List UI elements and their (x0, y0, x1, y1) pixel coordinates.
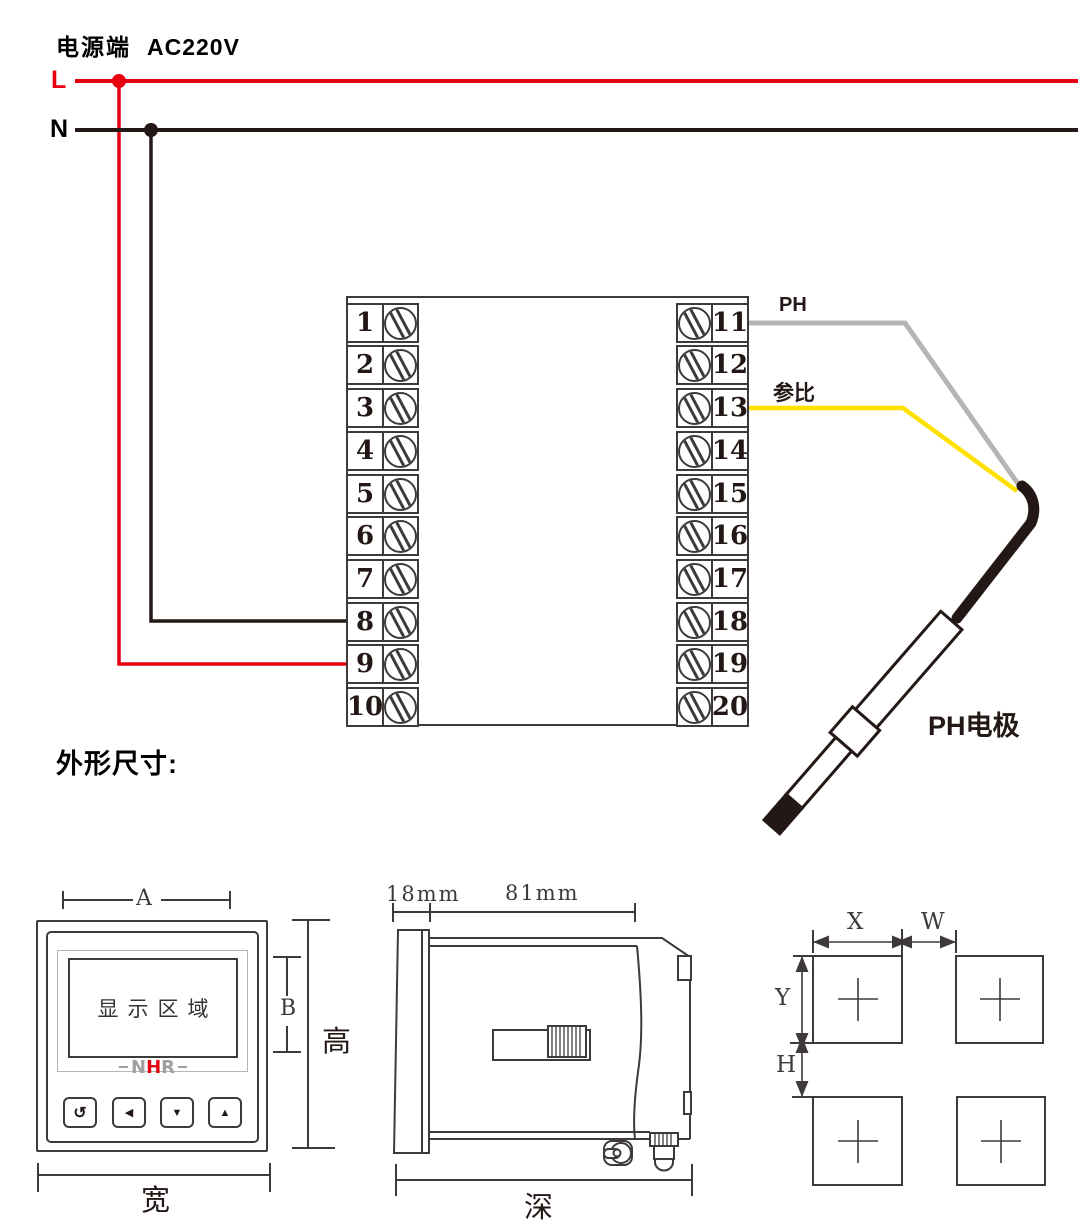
terminal-row-18: 18 (676, 602, 749, 642)
logo-dash-right (178, 1066, 187, 1068)
depth-dim-label: 深 (524, 1184, 553, 1225)
screw-icon (384, 563, 417, 596)
screw-icon (678, 349, 711, 382)
terminal-row-2: 2 (346, 345, 419, 385)
terminal-screw-cell (382, 516, 419, 556)
terminal-row-6: 6 (346, 516, 419, 556)
side-bezel (394, 930, 429, 1153)
terminal-row-11: 11 (676, 303, 749, 343)
terminal-number: 13 (711, 388, 749, 428)
width-dim-label: 宽 (141, 1177, 170, 1219)
terminal-screw-cell (382, 388, 419, 428)
side-view-drawing (393, 903, 692, 1196)
side-tab-top (678, 956, 691, 980)
terminal-number: 16 (711, 516, 749, 556)
terminal-number: 14 (711, 431, 749, 471)
live-line-label: L (51, 66, 66, 95)
electrode-cable (957, 486, 1034, 618)
terminal-number: 4 (346, 431, 384, 471)
terminal-screw-cell (382, 644, 419, 684)
side-cable-gland (650, 1133, 678, 1171)
wiring-and-dimensions-diagram: 电源端AC220V L N 1 2 3 4 5 6 7 8 9 10 11 12… (0, 0, 1080, 1225)
dim-label-b: B (280, 996, 296, 1021)
terminal-number: 10 (346, 687, 384, 727)
neutral-line-label: N (50, 115, 68, 144)
terminal-number: 20 (711, 687, 749, 727)
display-area: 显示区域 (68, 958, 238, 1058)
terminal-row-10: 10 (346, 687, 419, 727)
electrode-shaft (786, 737, 852, 808)
dim-label-a: A (136, 886, 152, 911)
terminal-row-1: 1 (346, 303, 419, 343)
terminal-screw-cell (382, 431, 419, 471)
display-area-label: 显示区域 (89, 993, 218, 1023)
dim-label-18mm: 18mm (386, 882, 461, 906)
cutout-arrowheads (796, 936, 957, 1098)
side-back-seam (634, 946, 641, 1139)
terminal-number: 19 (711, 644, 749, 684)
terminal-number: 18 (711, 602, 749, 642)
terminal-row-5: 5 (346, 474, 419, 514)
terminal-screw-cell (382, 687, 419, 727)
terminal-screw-cell (676, 559, 713, 599)
reference-wire-label: 参比 (773, 377, 815, 407)
screw-icon (678, 435, 711, 468)
power-section-title: 电源端AC220V (56, 28, 240, 62)
terminal-screw-cell (676, 388, 713, 428)
up-arrow-button-icon: ▲ (208, 1097, 242, 1128)
terminal-row-14: 14 (676, 431, 749, 471)
terminal-row-13: 13 (676, 388, 749, 428)
screw-icon (384, 691, 417, 724)
dim-label-y: Y (775, 985, 790, 1011)
terminal-screw-cell (676, 516, 713, 556)
reference-wire (749, 408, 1017, 491)
terminal-screw-cell (676, 431, 713, 471)
logo-letter-r: R (161, 1057, 175, 1078)
height-dim-label: 高 (322, 1018, 351, 1060)
screw-icon (678, 691, 711, 724)
cutout-drawing (790, 929, 1045, 1185)
cutout-dimension-lines (790, 929, 956, 1097)
power-terminal-label: 电源端 (56, 34, 131, 60)
ph-electrode-label: PH电极 (928, 704, 1020, 743)
terminal-number: 12 (711, 345, 749, 385)
screw-icon (678, 392, 711, 425)
terminal-number: 3 (346, 388, 384, 428)
left-arrow-button-icon: ◀ (112, 1097, 146, 1128)
screw-icon (678, 648, 711, 681)
terminal-row-20: 20 (676, 687, 749, 727)
screw-icon (384, 648, 417, 681)
terminal-number: 6 (346, 516, 384, 556)
screw-icon (384, 478, 417, 511)
side-tab-bottom (684, 1092, 691, 1114)
terminal-number: 9 (346, 644, 384, 684)
terminal-row-8: 8 (346, 602, 419, 642)
terminal-row-17: 17 (676, 559, 749, 599)
terminal-row-7: 7 (346, 559, 419, 599)
voltage-label: AC220V (147, 34, 240, 60)
dim-label-h: H (776, 1052, 796, 1078)
dim-label-x: X (847, 909, 863, 935)
ph-wire-label: PH (779, 294, 807, 317)
terminal-screw-cell (676, 345, 713, 385)
cycle-button-icon: ↺ (63, 1097, 97, 1128)
screw-icon (678, 307, 711, 340)
down-arrow-button-icon: ▼ (160, 1097, 194, 1128)
outline-dimensions-title: 外形尺寸: (56, 742, 178, 781)
dim-label-w: W (921, 909, 945, 935)
screw-icon (384, 349, 417, 382)
terminal-number: 15 (711, 474, 749, 514)
terminal-row-16: 16 (676, 516, 749, 556)
terminal-row-15: 15 (676, 474, 749, 514)
terminal-screw-cell (382, 303, 419, 343)
terminal-screw-cell (676, 303, 713, 343)
electrode-drawing (757, 486, 1033, 840)
screw-icon (678, 478, 711, 511)
screw-icon (678, 606, 711, 639)
terminal-screw-cell (676, 602, 713, 642)
terminal-screw-cell (676, 644, 713, 684)
terminal-row-12: 12 (676, 345, 749, 385)
terminal-number: 8 (346, 602, 384, 642)
screw-icon (678, 520, 711, 553)
terminal-screw-cell (382, 345, 419, 385)
logo-letter-n: N (131, 1057, 146, 1078)
terminal-number: 5 (346, 474, 384, 514)
terminal-screw-cell (382, 559, 419, 599)
terminal-screw-cell (382, 474, 419, 514)
terminal-screw-cell (676, 474, 713, 514)
screw-icon (678, 563, 711, 596)
screw-icon (384, 435, 417, 468)
dim-label-81mm: 81mm (505, 881, 580, 905)
terminal-number: 1 (346, 303, 384, 343)
logo-dash-left (119, 1066, 128, 1068)
screw-icon (384, 606, 417, 639)
terminal-screw-cell (382, 602, 419, 642)
terminal-row-19: 19 (676, 644, 749, 684)
terminal-number: 7 (346, 559, 384, 599)
screw-icon (384, 307, 417, 340)
terminal-row-4: 4 (346, 431, 419, 471)
terminal-number: 17 (711, 559, 749, 599)
logo-letter-h: H (146, 1057, 161, 1078)
terminal-row-3: 3 (346, 388, 419, 428)
screw-icon (384, 392, 417, 425)
screw-icon (384, 520, 417, 553)
terminal-number: 11 (711, 303, 749, 343)
terminal-number: 2 (346, 345, 384, 385)
terminal-screw-cell (676, 687, 713, 727)
cutout-crosshairs (838, 978, 1021, 1163)
nhr-logo: NHR (88, 1059, 218, 1077)
terminal-row-9: 9 (346, 644, 419, 684)
